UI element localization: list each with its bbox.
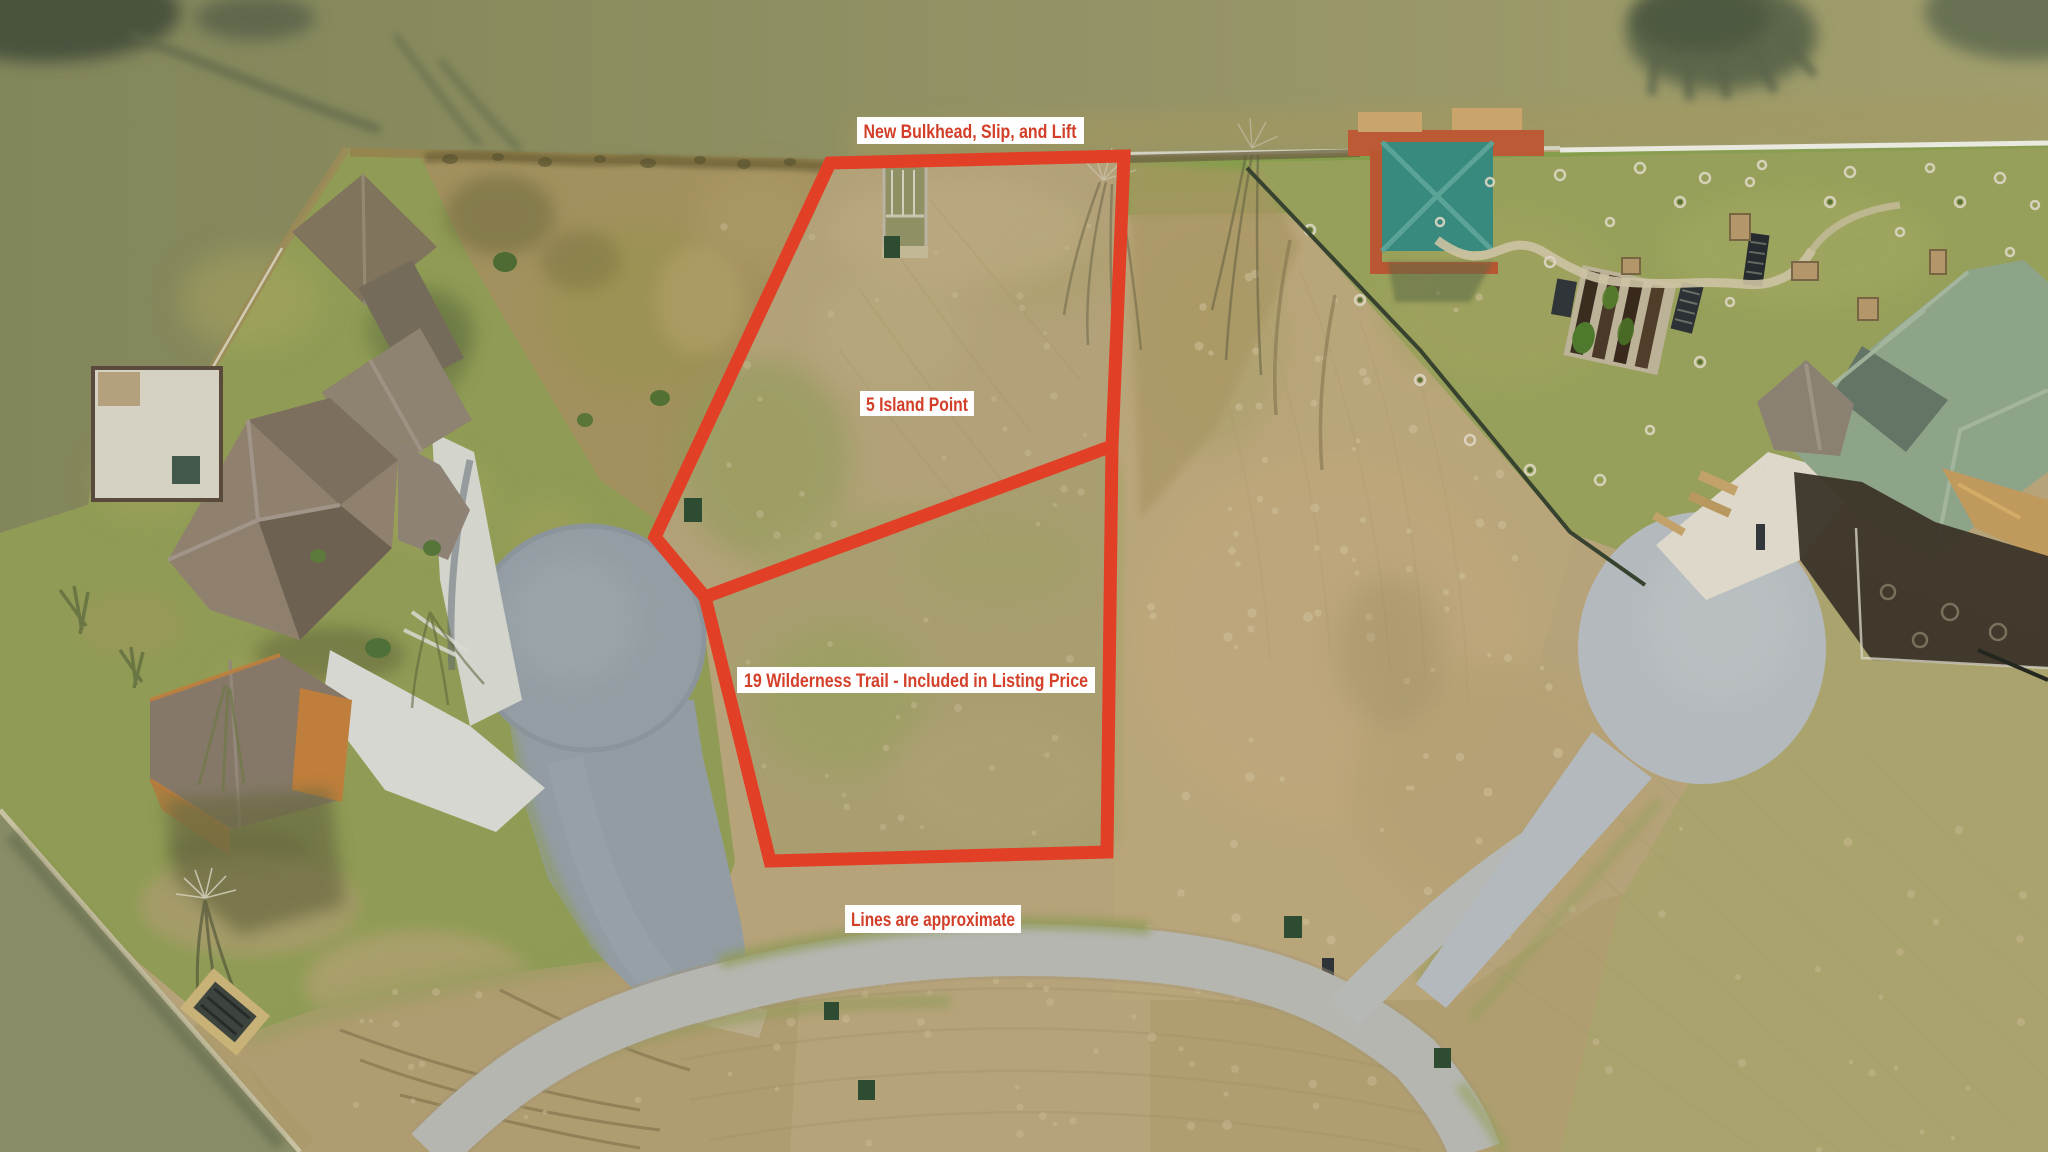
svg-text:19 Wilderness Trail - Included: 19 Wilderness Trail - Included in Listin… bbox=[744, 671, 1088, 692]
svg-text:5 Island Point: 5 Island Point bbox=[866, 395, 969, 416]
svg-text:New Bulkhead, Slip, and Lift: New Bulkhead, Slip, and Lift bbox=[864, 122, 1078, 143]
svg-text:Lines are approximate: Lines are approximate bbox=[851, 910, 1015, 931]
